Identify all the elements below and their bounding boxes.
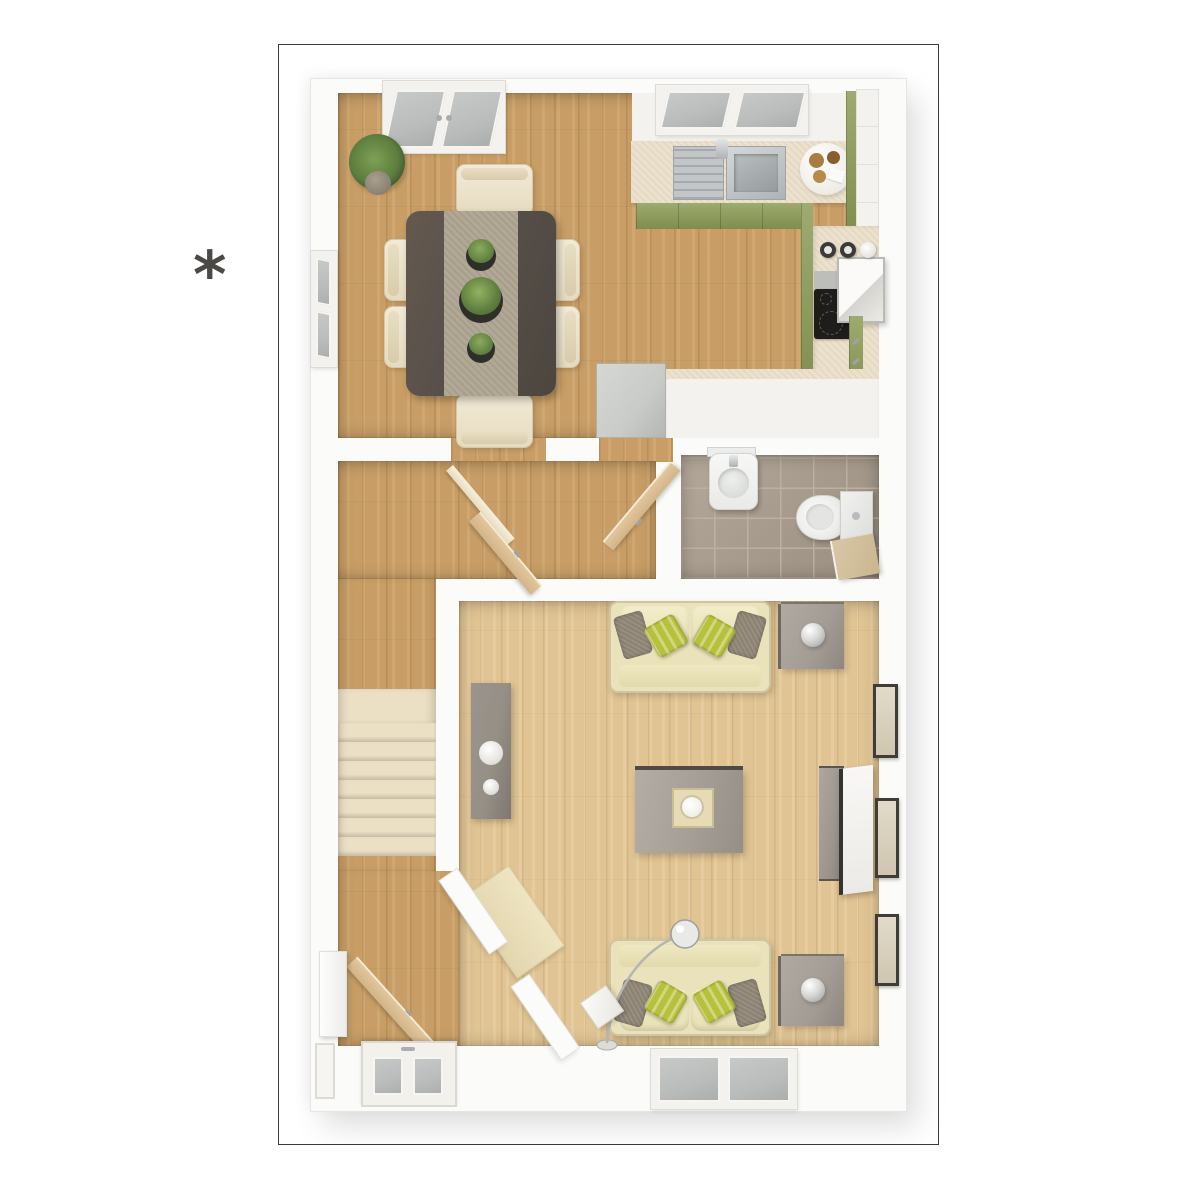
serving-tray — [672, 788, 714, 828]
entrance-shelf — [319, 951, 347, 1037]
table-lamp — [801, 623, 825, 647]
living-room-window — [651, 1049, 797, 1109]
front-door-pane — [373, 1057, 403, 1095]
sofa-seat — [619, 665, 761, 687]
window-pane — [658, 1056, 720, 1102]
sink-bowl — [726, 146, 786, 200]
wc-door — [832, 534, 880, 581]
dining-chair — [456, 394, 533, 448]
canister — [820, 242, 836, 258]
kitchen-tap — [716, 139, 728, 159]
side-table — [781, 956, 844, 1026]
stair-step — [338, 818, 436, 837]
picture-frame — [875, 914, 899, 986]
kitchen-window — [656, 85, 808, 135]
picture-frame — [875, 798, 899, 878]
plant-pot — [365, 171, 391, 195]
toilet-bowl — [796, 495, 846, 540]
food-item — [813, 170, 826, 183]
french-doors — [383, 81, 505, 153]
arc-floor-lamp — [577, 915, 707, 1051]
table-lamp — [801, 978, 825, 1002]
doorway-threshold-right — [599, 438, 673, 462]
stair-step — [338, 780, 436, 799]
basin-bowl — [718, 468, 749, 498]
canister — [840, 242, 856, 258]
dining-window — [311, 251, 337, 367]
door-handle-icon — [446, 115, 452, 121]
stair-step — [338, 837, 436, 856]
stair-step — [338, 761, 436, 780]
decor-plate — [479, 741, 503, 765]
food-item — [809, 153, 824, 168]
stairs-landing — [338, 689, 436, 723]
page: { "annotation": { "symbol": "*" }, "plan… — [0, 0, 1200, 1200]
stair-step — [338, 723, 436, 742]
tall-cabinet-green-side — [846, 91, 856, 236]
window-pane — [316, 310, 331, 359]
napkin — [827, 167, 846, 183]
table-plant — [468, 239, 494, 263]
toilet-seat — [806, 504, 834, 530]
peninsula-counter-top — [666, 369, 879, 379]
front-door-pane — [413, 1057, 443, 1095]
food-item — [827, 151, 840, 164]
asterisk-annotation: * — [193, 244, 226, 308]
coffee-table — [635, 770, 743, 853]
tall-cabinet — [856, 89, 879, 241]
door-handle-icon — [436, 115, 442, 121]
entrance-window — [315, 1043, 335, 1099]
dining-table — [406, 211, 556, 396]
basin-tap — [729, 455, 738, 467]
hob-surround — [814, 271, 838, 291]
stair-step — [338, 799, 436, 818]
decor-plate — [483, 779, 499, 795]
side-table — [781, 604, 844, 669]
door-handle-icon — [401, 1047, 415, 1051]
wash-basin — [709, 453, 758, 510]
kitchen-appliance — [596, 363, 666, 438]
picture-frame — [873, 684, 898, 758]
floor-plan — [278, 44, 939, 1145]
front-door — [361, 1041, 457, 1107]
window-pane — [728, 1056, 790, 1102]
cabinet-handle-icon — [852, 358, 860, 365]
sofa — [609, 601, 771, 693]
window-pane — [316, 257, 331, 306]
dining-chair — [456, 164, 533, 216]
flush-button-icon — [852, 512, 860, 520]
serving-tray — [800, 143, 852, 195]
sink-basin — [734, 154, 778, 192]
window-pane — [734, 91, 807, 129]
bowl — [680, 795, 704, 819]
window-pane — [660, 91, 733, 129]
table-plant — [469, 333, 493, 355]
stair-step — [338, 742, 436, 761]
extractor-oven — [837, 257, 885, 323]
kitchen-cabinets-front — [636, 203, 801, 229]
peninsula-counter — [666, 369, 879, 438]
lamp-shade-icon — [671, 920, 699, 948]
tv — [839, 765, 873, 895]
console-table — [471, 683, 511, 819]
table-plant — [461, 277, 501, 315]
hob-burner-icon — [820, 293, 832, 305]
canister — [860, 242, 876, 258]
cabinet-handle-icon — [852, 338, 860, 345]
